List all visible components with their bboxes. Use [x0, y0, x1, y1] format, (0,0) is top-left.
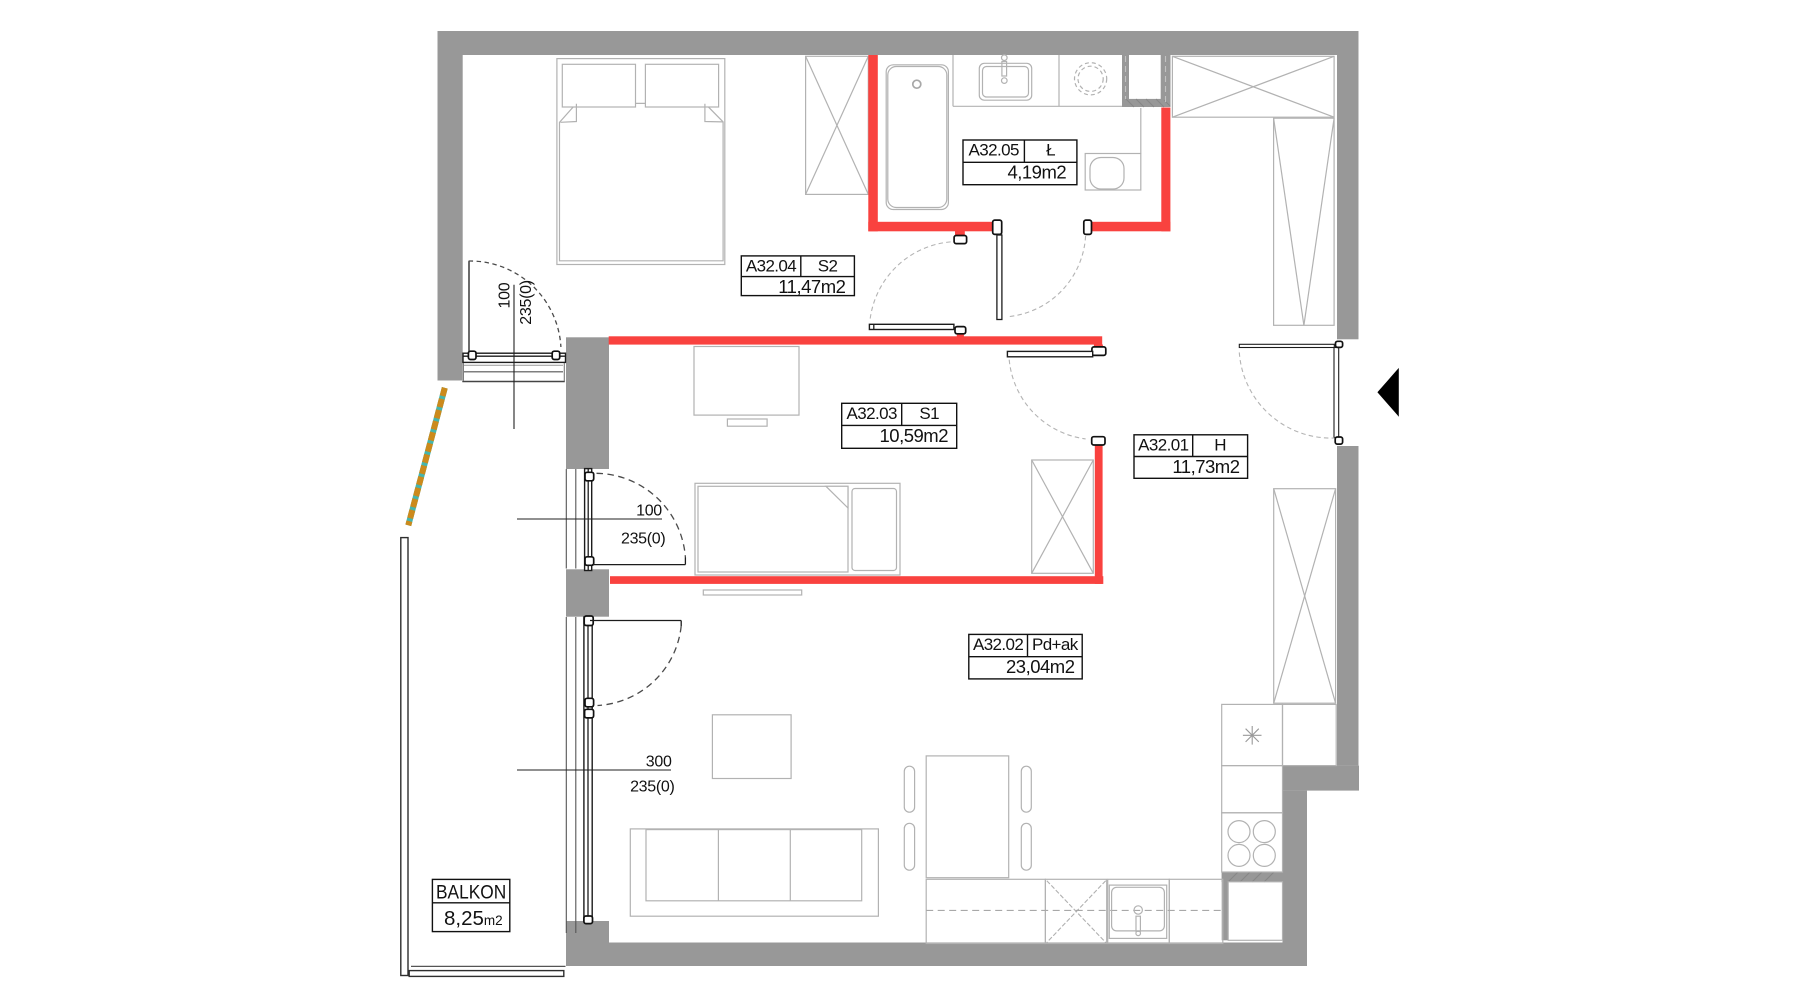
svg-text:H: H	[1214, 436, 1226, 455]
svg-text:11,47m2: 11,47m2	[778, 276, 845, 297]
svg-text:A32.02: A32.02	[973, 635, 1023, 654]
svg-text:A32.04: A32.04	[746, 257, 796, 276]
svg-text:A32.03: A32.03	[847, 404, 897, 423]
svg-text:Ł: Ł	[1046, 141, 1055, 160]
svg-text:S1: S1	[919, 404, 939, 423]
svg-text:235(0): 235(0)	[518, 280, 535, 324]
svg-text:100: 100	[496, 282, 513, 308]
svg-text:A32.01: A32.01	[1138, 436, 1188, 455]
svg-text:23,04m2: 23,04m2	[1006, 656, 1075, 677]
svg-text:11,73m2: 11,73m2	[1172, 456, 1239, 477]
svg-text:4,19m2: 4,19m2	[1007, 162, 1066, 183]
svg-text:BALKON: BALKON	[436, 881, 506, 903]
svg-text:235(0): 235(0)	[621, 531, 665, 548]
svg-text:100: 100	[636, 503, 662, 520]
svg-text:10,59m2: 10,59m2	[880, 425, 949, 446]
svg-text:235(0): 235(0)	[630, 779, 674, 796]
svg-text:Pd+ak: Pd+ak	[1032, 635, 1079, 654]
svg-text:A32.05: A32.05	[969, 141, 1019, 160]
svg-text:S2: S2	[818, 257, 838, 276]
svg-text:300: 300	[646, 754, 672, 771]
